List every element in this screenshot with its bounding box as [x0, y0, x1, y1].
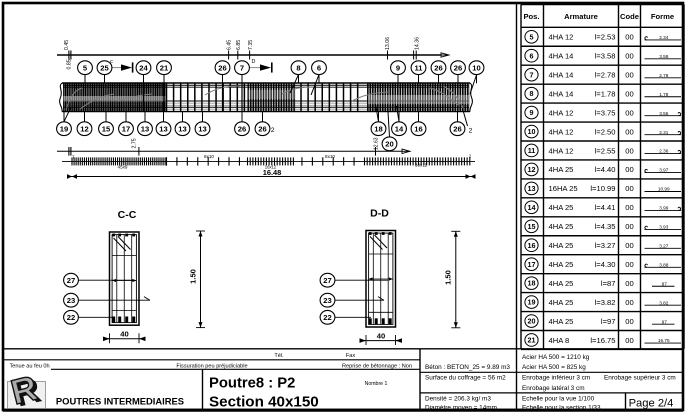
- svg-text:27: 27: [67, 276, 75, 285]
- svg-text:7: 7: [530, 70, 534, 79]
- svg-text:l=16.75: l=16.75: [590, 336, 615, 345]
- svg-text:00: 00: [625, 52, 633, 61]
- svg-text:4HA 12: 4HA 12: [549, 146, 574, 155]
- svg-text:00: 00: [625, 203, 633, 212]
- svg-text:4HA 25: 4HA 25: [549, 222, 574, 231]
- svg-text:Reprise de bétonnage : Non: Reprise de bétonnage : Non: [342, 363, 412, 369]
- svg-text:Acier HA 500 = 1210 kg: Acier HA 500 = 1210 kg: [522, 354, 590, 361]
- svg-text:00: 00: [625, 146, 633, 155]
- svg-text:4HA 25: 4HA 25: [549, 317, 574, 326]
- svg-text:00: 00: [625, 317, 633, 326]
- svg-text:8x10: 8x10: [204, 154, 214, 159]
- svg-text:19: 19: [60, 124, 68, 133]
- svg-text:14.36: 14.36: [414, 37, 420, 50]
- svg-text:Enrobage supérieur 3 cm: Enrobage supérieur 3 cm: [604, 375, 676, 382]
- svg-text:15: 15: [102, 124, 111, 133]
- svg-text:13: 13: [141, 124, 149, 133]
- svg-text:13: 13: [198, 124, 206, 133]
- svg-text:3.93: 3.93: [659, 225, 669, 230]
- svg-text:Fax: Fax: [346, 353, 356, 359]
- svg-text:22: 22: [67, 313, 75, 322]
- svg-text:0.85: 0.85: [67, 59, 73, 69]
- svg-text:l=97: l=97: [601, 317, 616, 326]
- svg-text:17: 17: [122, 124, 130, 133]
- svg-text:2.34: 2.34: [659, 35, 669, 40]
- svg-text:D: D: [252, 59, 256, 65]
- svg-text:26: 26: [258, 124, 266, 133]
- svg-text:11: 11: [414, 63, 423, 72]
- svg-text:Tél.: Tél.: [274, 353, 284, 359]
- svg-text:10: 10: [528, 127, 536, 136]
- svg-text:Densité = 206.3 kg/ m3: Densité = 206.3 kg/ m3: [425, 396, 491, 403]
- svg-text:2.36: 2.36: [659, 149, 669, 154]
- svg-text:6.85: 6.85: [236, 40, 242, 50]
- svg-text:00: 00: [625, 127, 633, 136]
- svg-text:17: 17: [528, 260, 536, 269]
- svg-text:10.99: 10.99: [658, 187, 670, 192]
- svg-text:16: 16: [414, 124, 422, 133]
- svg-text:14: 14: [395, 124, 404, 133]
- svg-text:4HA 25: 4HA 25: [549, 279, 574, 288]
- svg-text:4HA 25: 4HA 25: [549, 298, 574, 307]
- svg-text:Acier HA 500 = 825 kg: Acier HA 500 = 825 kg: [522, 364, 586, 371]
- svg-text:20: 20: [385, 140, 393, 149]
- svg-text:Diamètre moyen = 14mm: Diamètre moyen = 14mm: [425, 404, 497, 411]
- svg-text:13: 13: [159, 124, 167, 133]
- svg-text:16: 16: [528, 241, 536, 250]
- svg-text:3.97: 3.97: [659, 168, 669, 173]
- svg-text:45x9: 45x9: [118, 164, 128, 169]
- svg-text:l=4.40: l=4.40: [595, 165, 616, 174]
- svg-text:26: 26: [238, 124, 246, 133]
- svg-text:4HA 12: 4HA 12: [549, 127, 574, 136]
- svg-text:3.82: 3.82: [659, 300, 669, 305]
- svg-text:00: 00: [625, 89, 633, 98]
- svg-text:26: 26: [434, 63, 442, 72]
- svg-text:l=2.55: l=2.55: [595, 146, 616, 155]
- svg-text:l=2.53: l=2.53: [595, 33, 616, 42]
- svg-text:26: 26: [453, 124, 461, 133]
- svg-text:4HA 25: 4HA 25: [549, 165, 574, 174]
- svg-text:2.31: 2.31: [659, 130, 669, 135]
- svg-text:1.50: 1.50: [444, 270, 453, 285]
- svg-text:0.45: 0.45: [64, 40, 70, 50]
- svg-text:13.06: 13.06: [385, 37, 391, 50]
- svg-text:Nombre 1: Nombre 1: [365, 381, 388, 387]
- svg-text:13: 13: [528, 184, 536, 193]
- svg-text:l=2.78: l=2.78: [595, 70, 616, 79]
- svg-text:00: 00: [625, 260, 633, 269]
- svg-text:14: 14: [528, 203, 536, 212]
- svg-text:00: 00: [625, 165, 633, 174]
- svg-text:15: 15: [528, 222, 536, 231]
- svg-text:4HA 8: 4HA 8: [549, 336, 570, 345]
- svg-text:l=10.99: l=10.99: [590, 184, 615, 193]
- svg-text:00: 00: [625, 33, 633, 42]
- svg-text:l=3.27: l=3.27: [595, 241, 616, 250]
- svg-text:l=3.58: l=3.58: [595, 52, 616, 61]
- svg-text:9: 9: [530, 108, 534, 117]
- svg-text:l=1.78: l=1.78: [595, 89, 616, 98]
- svg-text:6: 6: [317, 63, 321, 72]
- svg-text:26: 26: [454, 63, 462, 72]
- svg-text:1.78: 1.78: [659, 92, 669, 97]
- svg-text:00: 00: [625, 108, 633, 117]
- svg-text:Echelle pour la section 1/33: Echelle pour la section 1/33: [522, 405, 601, 412]
- svg-text:8: 8: [296, 63, 300, 72]
- svg-text:l=87: l=87: [601, 279, 616, 288]
- svg-text:21: 21: [160, 63, 169, 72]
- svg-text:C-C: C-C: [118, 209, 137, 221]
- svg-text:Enrobage inférieur 3 cm: Enrobage inférieur 3 cm: [522, 375, 590, 382]
- svg-text:20: 20: [528, 317, 536, 326]
- svg-text:l=3.82: l=3.82: [595, 298, 616, 307]
- svg-text:l=2.50: l=2.50: [595, 127, 616, 136]
- svg-text:16.75: 16.75: [658, 338, 670, 343]
- svg-text:Pos.: Pos.: [523, 12, 539, 21]
- svg-text:Fissuration peu préjudiciable: Fissuration peu préjudiciable: [176, 363, 247, 369]
- svg-text:2: 2: [469, 154, 472, 159]
- svg-text:Page 2/4: Page 2/4: [629, 397, 674, 409]
- svg-text:00: 00: [625, 184, 633, 193]
- svg-text:Surface du coffrage = 56 m2: Surface du coffrage = 56 m2: [425, 374, 506, 381]
- svg-text:21: 21: [528, 336, 536, 345]
- svg-text:7.35: 7.35: [248, 40, 254, 50]
- svg-text:Poutre8 : P2: Poutre8 : P2: [209, 376, 295, 392]
- svg-text:00: 00: [625, 298, 633, 307]
- svg-text:1.50: 1.50: [188, 269, 197, 284]
- svg-text:4HA 25: 4HA 25: [549, 241, 574, 250]
- svg-text:8x10: 8x10: [325, 154, 335, 159]
- svg-text:23: 23: [323, 296, 331, 305]
- svg-text:l=4.30: l=4.30: [595, 260, 616, 269]
- svg-text:12: 12: [528, 165, 536, 174]
- svg-text:23: 23: [67, 296, 75, 305]
- svg-text:Enrobage latéral 3 cm: Enrobage latéral 3 cm: [522, 385, 585, 392]
- svg-text:12: 12: [80, 124, 88, 133]
- svg-text:Code: Code: [620, 12, 639, 21]
- svg-text:Echelle pour la vue 1/100: Echelle pour la vue 1/100: [522, 396, 595, 403]
- svg-text:7: 7: [72, 155, 75, 160]
- svg-text:18: 18: [528, 279, 536, 288]
- svg-text:8: 8: [530, 89, 534, 98]
- svg-text:2: 2: [469, 128, 473, 135]
- svg-text:6: 6: [530, 51, 534, 60]
- svg-text:4HA 14: 4HA 14: [549, 52, 574, 61]
- svg-text:27: 27: [323, 276, 331, 285]
- svg-text:5: 5: [530, 32, 534, 41]
- svg-text:4HA 25: 4HA 25: [549, 260, 574, 269]
- svg-text:2: 2: [271, 127, 275, 134]
- svg-text:POUTRES INTERMEDIAIRES: POUTRES INTERMEDIAIRES: [56, 396, 184, 407]
- svg-text:12.63: 12.63: [374, 137, 380, 150]
- svg-text:D-D: D-D: [370, 208, 389, 220]
- svg-text:l=3.75: l=3.75: [595, 108, 616, 117]
- svg-text:40: 40: [377, 332, 385, 341]
- svg-text:4HA 14: 4HA 14: [549, 89, 574, 98]
- svg-text:26: 26: [218, 63, 226, 72]
- svg-text:24: 24: [139, 63, 148, 72]
- svg-text:00: 00: [625, 222, 633, 231]
- svg-text:38x11: 38x11: [415, 163, 428, 168]
- svg-text:3.99: 3.99: [659, 206, 669, 211]
- svg-text:40: 40: [120, 330, 128, 339]
- svg-text:Section 40x150: Section 40x150: [209, 394, 319, 411]
- svg-text:6.45: 6.45: [227, 40, 233, 50]
- svg-text:3.56: 3.56: [659, 111, 669, 116]
- svg-text:2.75: 2.75: [131, 138, 137, 148]
- svg-text:00: 00: [625, 336, 633, 345]
- svg-text:2.78: 2.78: [659, 73, 669, 78]
- svg-text:13: 13: [178, 124, 186, 133]
- svg-text:16HA 25: 16HA 25: [549, 184, 578, 193]
- svg-text:10: 10: [472, 63, 480, 72]
- svg-text:9: 9: [396, 63, 400, 72]
- svg-text:4HA 12: 4HA 12: [549, 33, 574, 42]
- svg-text:25: 25: [100, 63, 109, 72]
- svg-text:00: 00: [625, 279, 633, 288]
- svg-text:11: 11: [528, 146, 536, 155]
- svg-text:l=4.35: l=4.35: [595, 222, 616, 231]
- svg-text:Armature: Armature: [564, 12, 598, 21]
- svg-text:3.88: 3.88: [659, 262, 669, 267]
- svg-text:4HA 14: 4HA 14: [549, 70, 574, 79]
- svg-text:Forme: Forme: [651, 12, 674, 21]
- svg-text:Béton : BETON_25 = 9.89 m3: Béton : BETON_25 = 9.89 m3: [425, 364, 510, 371]
- svg-text:4HA 25: 4HA 25: [549, 203, 574, 212]
- svg-text:3.58: 3.58: [659, 54, 669, 59]
- svg-text:97: 97: [662, 319, 668, 324]
- svg-text:3.27: 3.27: [659, 243, 669, 248]
- svg-text:22: 22: [323, 313, 331, 322]
- svg-text:00: 00: [625, 241, 633, 250]
- svg-text:19: 19: [528, 298, 536, 307]
- svg-text:l=4.41: l=4.41: [595, 203, 616, 212]
- svg-text:4HA 12: 4HA 12: [549, 108, 574, 117]
- svg-text:18: 18: [374, 124, 382, 133]
- svg-text:16.48: 16.48: [263, 168, 282, 177]
- svg-text:00: 00: [625, 70, 633, 79]
- svg-text:7: 7: [240, 63, 244, 72]
- svg-text:87: 87: [662, 281, 668, 286]
